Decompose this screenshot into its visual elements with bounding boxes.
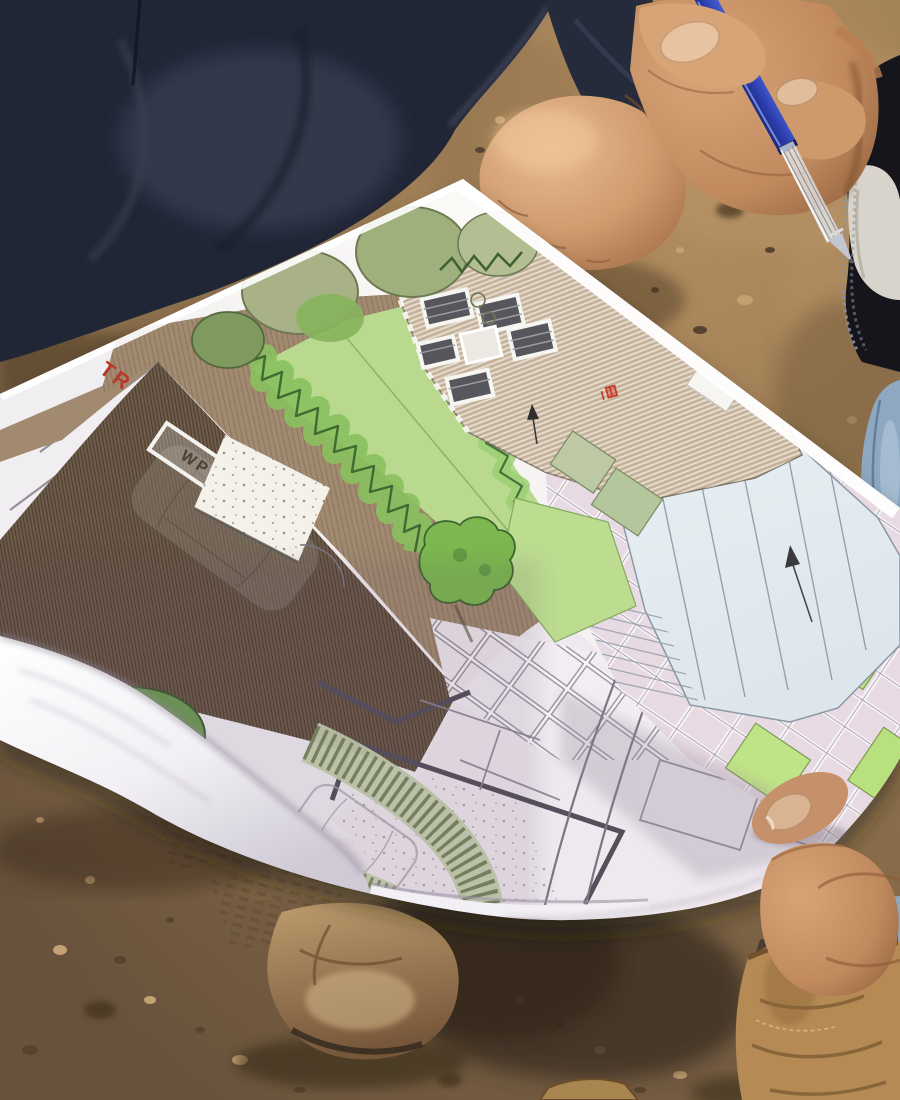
roof-hatch [460,326,502,363]
photo-canvas: WP [0,0,900,1100]
outdoor-photo-scene: WP [0,0,900,1100]
